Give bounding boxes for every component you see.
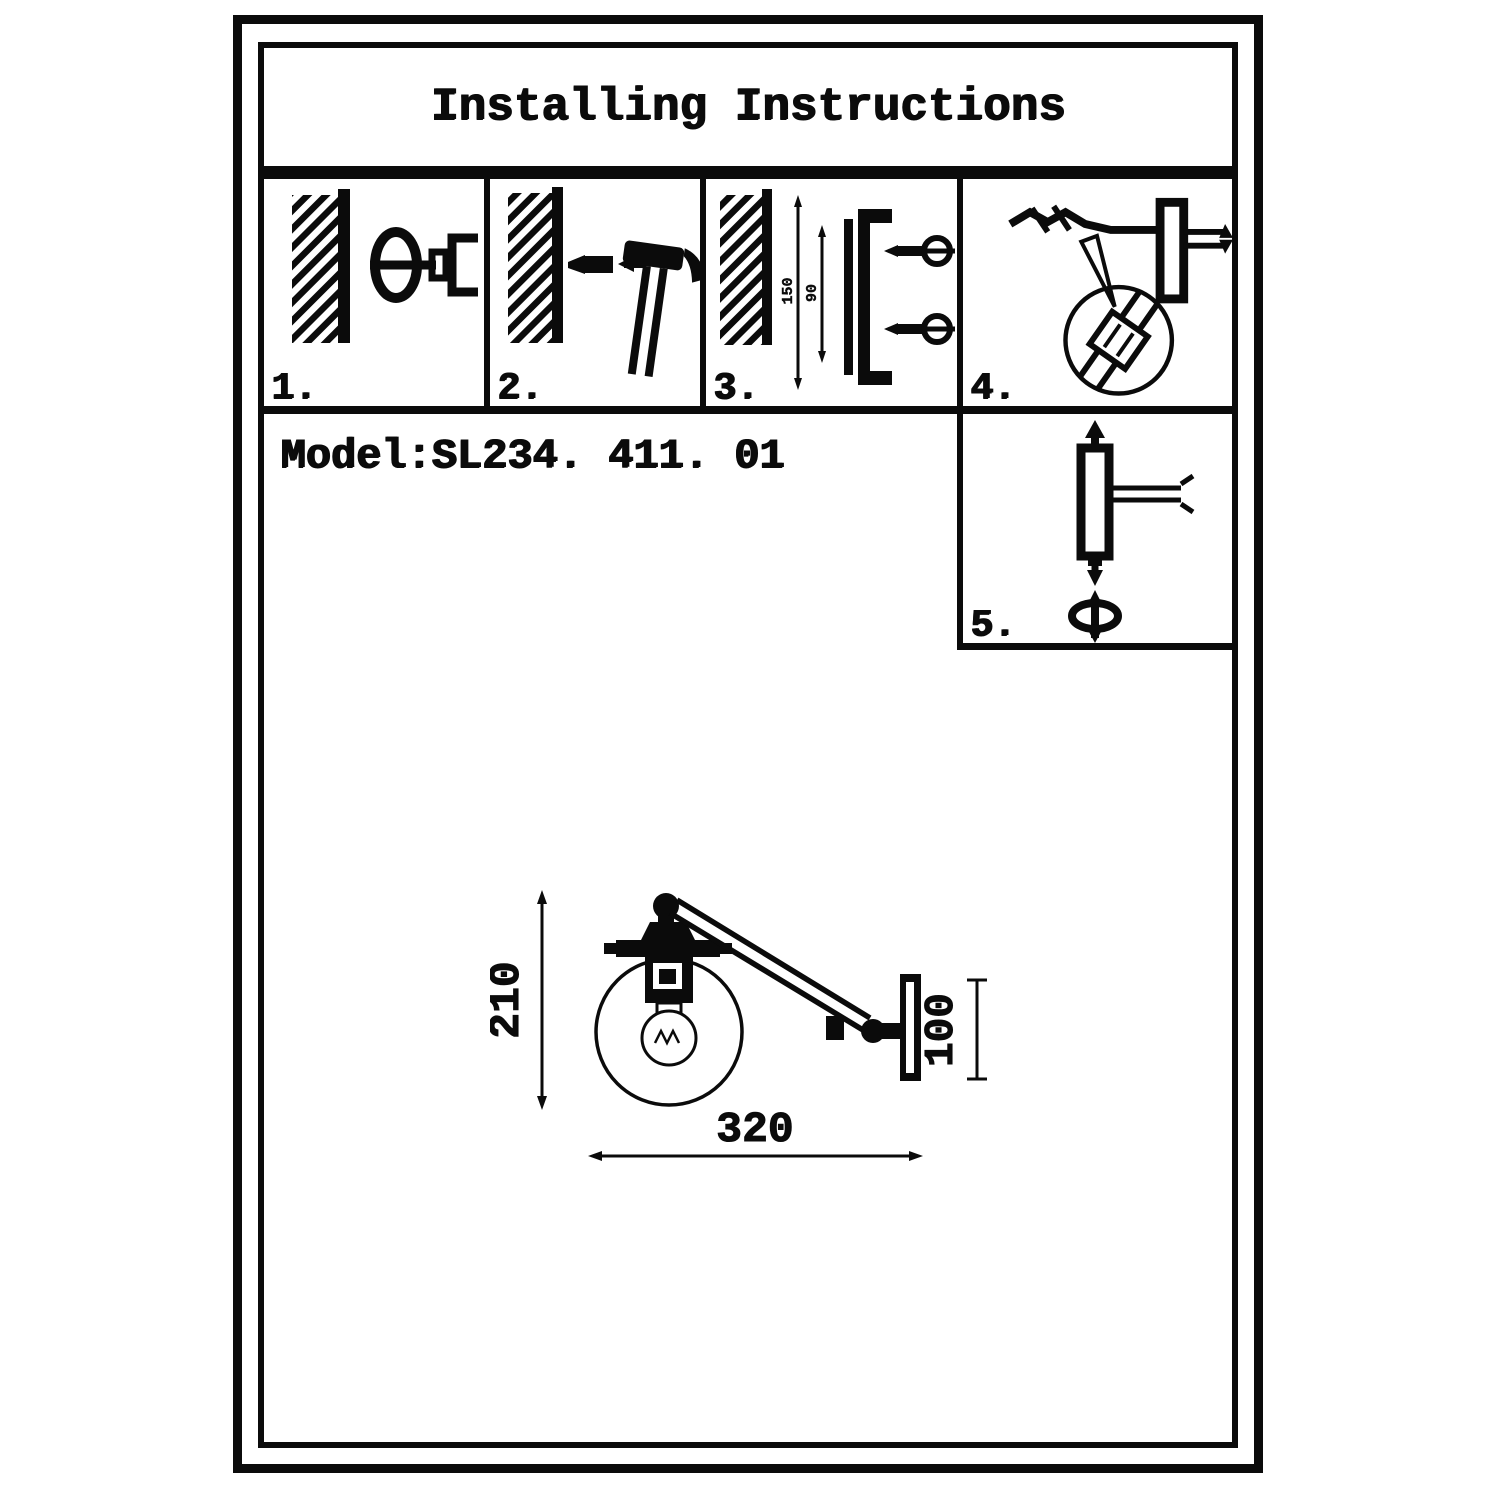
plate-dimension: 100 (919, 980, 987, 1079)
step-panel-1: 1. (264, 179, 490, 406)
outer-border: Installing Instructions (233, 15, 1263, 1473)
thumbscrew-icon (1072, 590, 1118, 643)
wall-hatch (292, 189, 350, 343)
height-value: 210 (490, 961, 531, 1038)
plate-height-value: 100 (919, 993, 965, 1067)
lamp-dimension-diagram: 210 (490, 860, 1010, 1205)
lamp-rod-icon (1081, 420, 1193, 586)
step-number-1: 1. (271, 367, 317, 410)
title-band: Installing Instructions (264, 48, 1232, 179)
height-dimension: 210 (490, 890, 547, 1110)
step-panel-4: 4. (963, 179, 1232, 406)
bulb-icon (642, 1003, 696, 1065)
inner-border: Installing Instructions (258, 42, 1238, 1448)
reach-dimension: 320 (588, 1105, 923, 1161)
swing-arm (670, 900, 902, 1043)
wall-plate (900, 974, 921, 1081)
step-number-5: 5. (970, 604, 1016, 647)
hole-spacing-outer: 150 (780, 277, 797, 304)
dimension-line-inner: 90 (804, 225, 826, 363)
adjuster-knob (826, 1016, 844, 1040)
elbow-joint (861, 1019, 885, 1043)
model-number: Model:SL234. 411. 01 (280, 432, 784, 480)
step-number-4: 4. (970, 367, 1016, 410)
drill-icon (370, 232, 478, 298)
step-panel-2: 2. (490, 179, 706, 406)
step-panel-3: 150 90 (706, 179, 963, 406)
twisted-wires-icon (1010, 206, 1160, 232)
anchor-icon (568, 255, 613, 274)
reach-value: 320 (716, 1105, 793, 1154)
steps-row: 1. (264, 179, 1232, 414)
lamp-head (604, 893, 732, 1003)
step-number-2: 2. (497, 367, 543, 410)
hole-spacing-inner: 90 (804, 284, 821, 302)
wall-plate-icon (1160, 202, 1232, 299)
wall-hatch (720, 189, 772, 345)
screw-icon (884, 238, 955, 264)
step-panel-5: 5. (957, 414, 1232, 650)
instruction-sheet: Installing Instructions (0, 0, 1500, 1500)
step-number-3: 3. (713, 367, 759, 410)
page-title: Installing Instructions (431, 81, 1066, 133)
hammer-icon (607, 240, 700, 382)
magnifier-detail-circle (1065, 286, 1171, 395)
mounting-bracket-icon (844, 209, 892, 385)
wall-hatch (508, 187, 563, 343)
dimension-line-outer: 150 (780, 195, 802, 390)
screw-icon (884, 316, 955, 342)
